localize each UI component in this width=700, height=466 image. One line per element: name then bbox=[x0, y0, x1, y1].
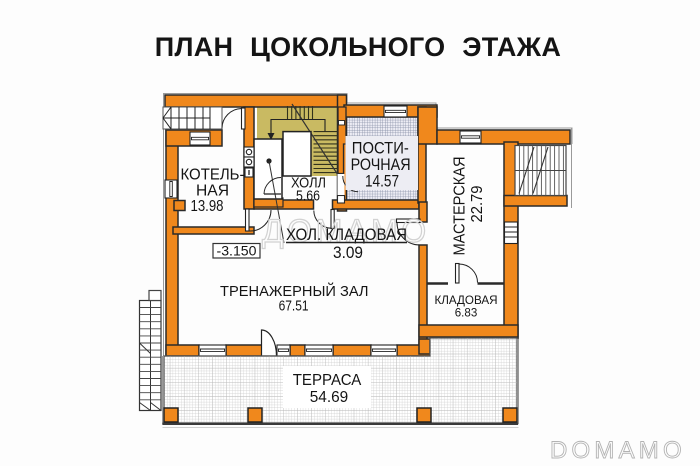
svg-text:54.69: 54.69 bbox=[310, 389, 349, 406]
svg-text:22.79: 22.79 bbox=[469, 186, 486, 223]
svg-text:6.83: 6.83 bbox=[455, 306, 478, 320]
svg-text:ХОЛ. КЛАДОВАЯ: ХОЛ. КЛАДОВАЯ bbox=[286, 226, 407, 244]
svg-text:ТРЕНАЖЕРНЫЙ ЗАЛ: ТРЕНАЖЕРНЫЙ ЗАЛ bbox=[220, 282, 369, 300]
svg-text:14.57: 14.57 bbox=[365, 172, 399, 191]
svg-text:МАСТЕРСКАЯ: МАСТЕРСКАЯ bbox=[452, 157, 469, 256]
svg-text:НАЯ: НАЯ bbox=[196, 183, 229, 200]
svg-text:67.51: 67.51 bbox=[279, 299, 309, 315]
svg-text:ПЛАН ЦОКОЛЬНОГО ЭТАЖА: ПЛАН ЦОКОЛЬНОГО ЭТАЖА bbox=[155, 32, 561, 62]
svg-text:5.66: 5.66 bbox=[296, 189, 320, 205]
svg-text:ТЕРРАСА: ТЕРРАСА bbox=[293, 372, 362, 389]
svg-text:DOMAMO: DOMAMO bbox=[550, 437, 686, 464]
svg-text:13.98: 13.98 bbox=[191, 198, 224, 215]
svg-text:-3.150: -3.150 bbox=[217, 243, 257, 259]
svg-text:КОТЕЛЬ-: КОТЕЛЬ- bbox=[181, 167, 245, 184]
svg-text:3.09: 3.09 bbox=[333, 244, 363, 262]
